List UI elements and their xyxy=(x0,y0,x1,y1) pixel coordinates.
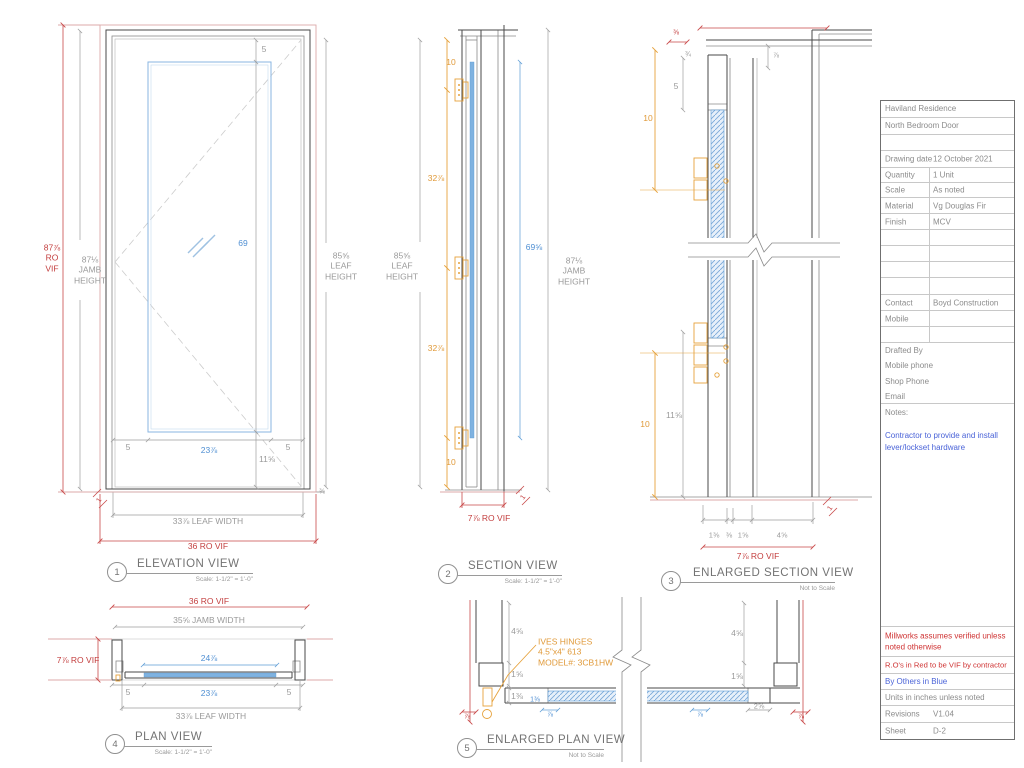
view-scale: Scale: 1-1/2" = 1'-0" xyxy=(457,578,562,585)
title-block-divider xyxy=(929,262,930,277)
title-block-divider xyxy=(929,214,930,229)
title-block-label: Revisions xyxy=(885,710,920,719)
title-block-divider xyxy=(929,168,930,182)
title-block-value: 12 October 2021 xyxy=(933,155,993,164)
title-block-divider xyxy=(929,327,930,342)
title-block-divider xyxy=(929,311,930,326)
view-scale: Not to Scale xyxy=(680,585,835,592)
title-block-row: Haviland Residence xyxy=(881,101,1014,117)
title-block-divider xyxy=(929,183,930,197)
view-scale: Not to Scale xyxy=(476,752,604,759)
title-block-note: R.O's in Red to be VIF by contractor xyxy=(885,660,1011,671)
title-block-row: Mobile xyxy=(881,310,1014,326)
title-block-row: FinishMCV xyxy=(881,213,1014,229)
view-title-underline xyxy=(476,749,604,750)
title-block-row: ScaleAs noted xyxy=(881,182,1014,197)
title-block-row xyxy=(881,134,1014,150)
view-number-badge: 1 xyxy=(107,562,127,582)
title-block-label: Sheet xyxy=(885,727,906,736)
title-block-note: North Bedroom Door xyxy=(885,120,1011,132)
view-title: PLAN VIEW xyxy=(135,731,202,743)
title-block-note: Millworks assumes verified unless noted … xyxy=(885,630,1011,653)
view-scale: Scale: 1-1/2" = 1'-0" xyxy=(124,749,212,756)
title-block-row: Millworks assumes verified unless noted … xyxy=(881,626,1014,656)
title-block-label: Finish xyxy=(885,217,906,226)
title-block-row: SheetD-2 xyxy=(881,722,1014,739)
title-block-note: Units in inches unless noted xyxy=(885,692,1011,704)
title-block-value: Boyd Construction xyxy=(933,298,998,307)
title-block-divider xyxy=(929,295,930,310)
title-block-value: MCV xyxy=(933,217,951,226)
title-block-row: Quantity1 Unit xyxy=(881,167,1014,182)
title-block-row: RevisionsV1.04 xyxy=(881,705,1014,722)
title-block-divider xyxy=(929,246,930,261)
title-block-row: By Others in Blue xyxy=(881,673,1014,689)
title-block-label: Contact xyxy=(885,298,913,307)
title-block-label: Material xyxy=(885,201,913,210)
title-block-label: Quantity xyxy=(885,171,915,180)
drawing-linework xyxy=(0,0,1024,768)
title-block-row xyxy=(881,229,1014,245)
title-block-divider xyxy=(929,278,930,294)
view-title-underline xyxy=(124,746,212,747)
sheet: 87⅞ RO VIF87⅛ JAMB HEIGHT85⅝ LEAF HEIGHT… xyxy=(0,0,1024,768)
title-block-value: D-2 xyxy=(933,727,946,736)
title-block-row: MaterialVg Douglas Fir xyxy=(881,197,1014,213)
title-block-note: By Others in Blue xyxy=(885,676,1011,688)
view-number: 1 xyxy=(114,567,119,578)
title-block-label: Mobile phone xyxy=(881,358,1014,373)
view-number-badge: 2 xyxy=(438,564,458,584)
title-block-divider xyxy=(929,198,930,213)
title-block-row xyxy=(881,245,1014,261)
title-block-note: Haviland Residence xyxy=(885,103,1011,115)
title-block: Haviland ResidenceNorth Bedroom DoorDraw… xyxy=(880,100,1015,740)
title-block-row xyxy=(881,277,1014,294)
title-block-label: Mobile xyxy=(885,314,909,323)
title-block-row xyxy=(881,326,1014,342)
title-block-row: Notes:Contractor to provide and install … xyxy=(881,403,1014,626)
view-number: 4 xyxy=(112,739,117,750)
view-number-badge: 5 xyxy=(457,738,477,758)
view-number-badge: 4 xyxy=(105,734,125,754)
title-block-divider xyxy=(929,230,930,245)
title-block-label: Drafted By xyxy=(881,343,1014,358)
view-title: ENLARGED PLAN VIEW xyxy=(487,734,625,746)
view-number-badge: 3 xyxy=(661,571,681,591)
view-number: 5 xyxy=(464,743,469,754)
view-number: 3 xyxy=(668,576,673,587)
notes-text: Contractor to provide and install lever/… xyxy=(885,430,1008,455)
title-block-label: Scale xyxy=(885,186,905,195)
title-block-row: Units in inches unless noted xyxy=(881,689,1014,705)
title-block-row: Drafted ByMobile phoneShop PhoneEmail xyxy=(881,342,1014,403)
title-block-label: Drawing date xyxy=(885,155,932,164)
title-block-label: Shop Phone xyxy=(881,374,1014,389)
title-block-row: Drawing date12 October 2021 xyxy=(881,150,1014,167)
view-title-underline xyxy=(457,575,562,576)
view-number: 2 xyxy=(445,569,450,580)
view-title-underline xyxy=(126,573,253,574)
title-block-value: 1 Unit xyxy=(933,171,954,180)
view-title: SECTION VIEW xyxy=(468,560,558,572)
title-block-row: R.O's in Red to be VIF by contractor xyxy=(881,656,1014,673)
view-title: ELEVATION VIEW xyxy=(137,558,239,570)
title-block-value: Vg Douglas Fir xyxy=(933,201,986,210)
title-block-row xyxy=(881,261,1014,277)
view-title: ENLARGED SECTION VIEW xyxy=(693,567,854,579)
title-block-row: ContactBoyd Construction xyxy=(881,294,1014,310)
view-title-underline xyxy=(680,582,835,583)
title-block-value: As noted xyxy=(933,186,965,195)
title-block-value: V1.04 xyxy=(933,710,954,719)
view-scale: Scale: 1-1/2" = 1'-0" xyxy=(126,576,253,583)
title-block-label: Email xyxy=(881,389,1014,404)
notes-label: Notes: xyxy=(885,408,908,417)
title-block-row: North Bedroom Door xyxy=(881,117,1014,134)
